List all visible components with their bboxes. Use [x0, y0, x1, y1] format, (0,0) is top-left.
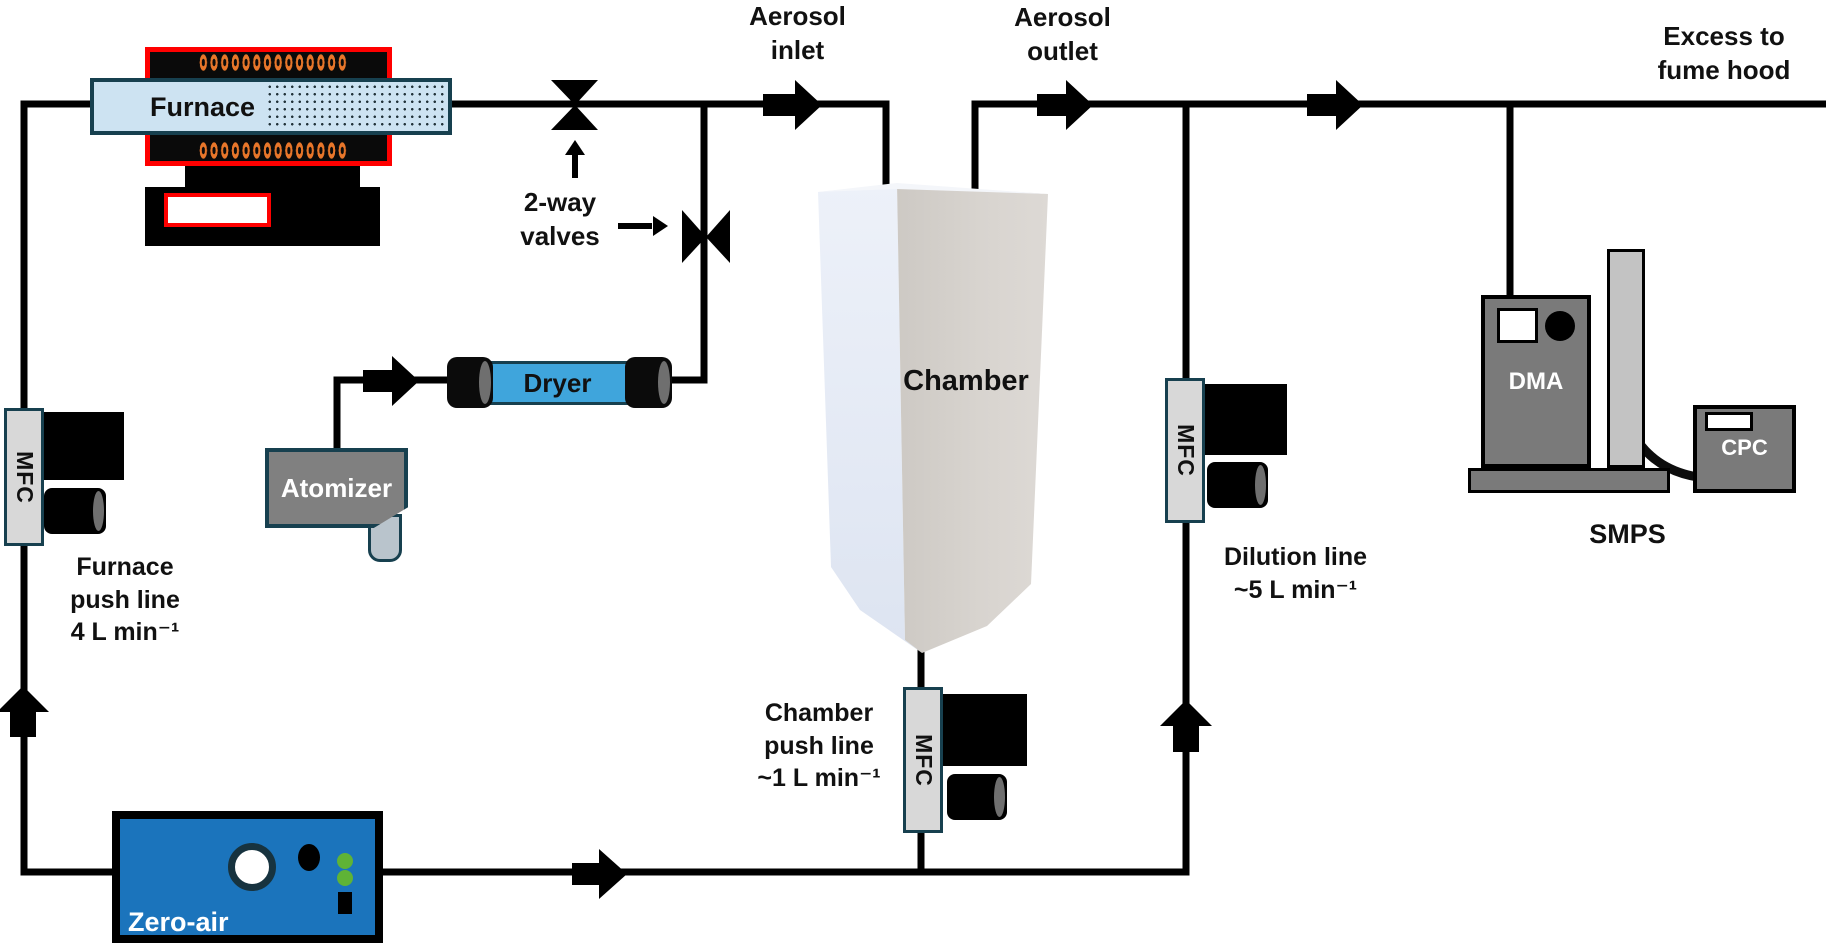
smps-base-plate: [1468, 468, 1670, 493]
mfc-dilution-monitor: [1205, 384, 1287, 455]
aerosol-inlet-arrow: [763, 80, 822, 130]
furnace-display: [164, 193, 271, 227]
zero-air-bottom-pipe: [383, 519, 1186, 872]
dilution-line-label: Dilution line ~5 L min⁻¹: [1203, 541, 1388, 606]
cpc-label: CPC: [1693, 435, 1796, 461]
furnace-outlet-pipe: [452, 104, 886, 192]
zero-air-led-2: [337, 870, 353, 886]
zero-air-knob: [228, 843, 276, 891]
dryer-inlet-arrow: [363, 356, 419, 406]
excess-to-fume-hood-label: Excess to fume hood: [1624, 20, 1824, 88]
aerosol-outlet-arrow: [1037, 80, 1093, 130]
mfc-chamber-push-label: MFC: [910, 734, 937, 787]
dryer-label: Dryer: [524, 368, 592, 399]
furnace-pedestal: [185, 166, 360, 187]
zero-air-label: Zero-air: [128, 905, 278, 940]
zero-air-switch: [338, 892, 352, 914]
mfc-furnace-push: MFC: [4, 408, 44, 546]
mfc-furnace-push-valve-motor: [44, 488, 106, 534]
dilution-up-arrow: [1160, 700, 1212, 752]
dma-display: [1497, 308, 1538, 343]
mfc-chamber-push-valve-motor: [947, 774, 1007, 820]
mfc-furnace-push-label: MFC: [11, 451, 38, 504]
aerosol-outlet-label: Aerosol outlet: [985, 1, 1140, 69]
cpc-display: [1705, 412, 1753, 431]
furnace-push-line-label: Furnace push line 4 L min⁻¹: [40, 551, 210, 649]
chamber: [818, 183, 1048, 653]
chamber-right-face: [897, 184, 1048, 653]
dma-knob: [1545, 311, 1575, 341]
mfc-furnace-push-monitor: [44, 412, 124, 480]
smps-label: SMPS: [1565, 517, 1690, 552]
zero-air-led-1: [337, 853, 353, 869]
two-way-valves-label: 2-way valves: [500, 186, 620, 254]
dryer-left-cap: [447, 357, 493, 408]
chamber-label: Chamber: [880, 363, 1052, 401]
dryer-right-cap: [625, 357, 672, 408]
heater-coil-top: [198, 51, 348, 74]
mfc-dilution-label: MFC: [1172, 424, 1199, 477]
atomizer: Atomizer: [265, 448, 408, 528]
chamber-push-line-label: Chamber push line ~1 L min⁻¹: [734, 697, 904, 795]
mfc-chamber-push: MFC: [903, 687, 943, 833]
dma-column: [1607, 249, 1645, 468]
furnace-label: Furnace: [95, 90, 310, 125]
aerosol-outlet-pipe: [975, 104, 1826, 192]
zero-air-line-arrow: [572, 849, 627, 899]
heater-coil-bottom: [198, 139, 348, 162]
mfc-dilution-valve-motor: [1207, 462, 1268, 508]
mfc-chamber-push-monitor: [943, 694, 1027, 766]
dryer: Dryer: [485, 361, 630, 405]
furnace-push-up-arrow: [0, 686, 49, 737]
excess-line-arrow: [1307, 80, 1363, 130]
zero-air-port: [298, 844, 320, 871]
dma-label: DMA: [1481, 368, 1591, 396]
atomizer-label: Atomizer: [281, 473, 392, 504]
mfc-dilution: MFC: [1165, 378, 1205, 523]
aerosol-inlet-label: Aerosol inlet: [720, 0, 875, 68]
flow-diagram: Furnace MFC MFC MFC Atomizer Dryer Zero-…: [0, 0, 1831, 943]
